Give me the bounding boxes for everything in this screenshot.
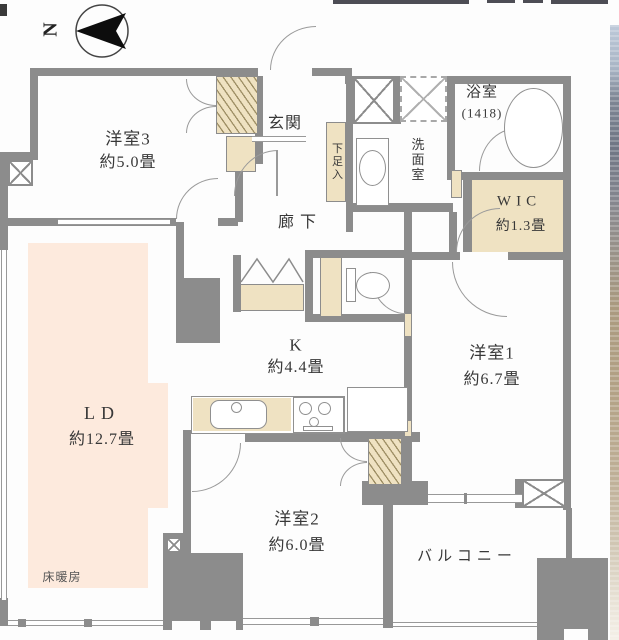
- grill-icon: [303, 426, 333, 431]
- bathtub-icon: [504, 88, 563, 168]
- entrance-step-line: [252, 136, 306, 142]
- compass-north-label: N: [40, 22, 63, 36]
- closet-room3: [216, 76, 258, 134]
- faucet-icon: [231, 402, 242, 413]
- room1-label: 洋室1: [469, 345, 515, 362]
- building-photo-sliver: [610, 25, 619, 640]
- folding-door-icon: [240, 257, 304, 284]
- window-mullion: [310, 617, 319, 626]
- door-leaf: [276, 150, 278, 196]
- cropped-text-artifact: [523, 0, 543, 3]
- hall-storage: [240, 284, 304, 311]
- wall: [8, 152, 38, 160]
- hallway-label: 廊下: [278, 215, 322, 231]
- washbasin-bowl-icon: [359, 150, 386, 186]
- wall: [312, 68, 352, 76]
- burner-icon: [318, 402, 331, 415]
- refrigerator-space: [347, 387, 408, 432]
- wall: [383, 505, 393, 628]
- pillar-notch: [564, 629, 588, 640]
- bathroom-label: 浴室: [466, 86, 498, 101]
- shoe-box-label: 下足入: [331, 143, 342, 182]
- bathroom-size: (1418): [462, 107, 503, 120]
- kitchen-label: K: [289, 337, 302, 354]
- cropped-text-artifact: [487, 0, 515, 3]
- window: [428, 494, 522, 503]
- kitchen-size: 約4.4畳: [267, 360, 324, 376]
- room2-size: 約6.0畳: [268, 538, 325, 554]
- room3-door-arc: [176, 178, 218, 219]
- balcony-label: バルコニー: [417, 550, 517, 565]
- room3-size: 約5.0畳: [99, 155, 156, 171]
- cropped-text-artifact: [333, 0, 469, 4]
- pillar-notch: [172, 621, 200, 630]
- room2-label: 洋室2: [274, 511, 320, 528]
- floorplan: N: [0, 0, 619, 640]
- washer-space-icon: [400, 76, 447, 122]
- wall: [30, 68, 258, 76]
- wall: [563, 84, 571, 510]
- window-mullion: [18, 619, 26, 627]
- room1-door-arc: [452, 262, 507, 317]
- pillar: [163, 553, 243, 630]
- window: [1, 250, 7, 600]
- pillar: [537, 558, 608, 640]
- wall: [305, 250, 313, 322]
- wall: [508, 252, 571, 260]
- closet-door-arc: [186, 106, 216, 133]
- pipe-space-icon: [8, 160, 33, 186]
- wall: [176, 222, 184, 278]
- wic-label: WIC: [497, 195, 541, 210]
- wall: [0, 598, 8, 626]
- wall: [566, 508, 572, 560]
- wall: [447, 172, 571, 180]
- wall-niche: [404, 313, 412, 337]
- living-label: LD: [84, 404, 120, 422]
- pipe-space-icon: [166, 537, 182, 553]
- closet-room2: [368, 438, 402, 485]
- toilet-counter: [320, 257, 342, 317]
- window-mullion: [84, 619, 92, 627]
- closet-door-arc: [340, 462, 367, 486]
- wic-door-panel: [451, 170, 462, 198]
- pipe-space-icon: [522, 479, 566, 508]
- pillar-notch: [211, 621, 236, 630]
- wic-size: 約1.3畳: [496, 220, 547, 234]
- room2-door-arc: [192, 443, 241, 492]
- toilet-tank-icon: [346, 268, 356, 302]
- wall: [30, 68, 38, 158]
- window: [58, 219, 170, 225]
- living-size: 約12.7畳: [69, 432, 135, 448]
- wall: [0, 152, 8, 250]
- entrance-label: 玄関: [268, 116, 302, 132]
- entrance-door-arc: [270, 26, 316, 70]
- window-mullion: [464, 493, 467, 504]
- room1-size: 約6.7畳: [463, 372, 520, 388]
- toilet-bowl-icon: [356, 272, 390, 299]
- closet-door-arc: [340, 438, 367, 462]
- cropped-mark-artifact: [0, 4, 7, 16]
- pillar: [176, 278, 220, 343]
- balcony-edge-line: [393, 622, 537, 627]
- floor-heating-label: 床暖房: [42, 571, 81, 583]
- closet-door-arc: [186, 79, 216, 106]
- wall: [346, 84, 353, 232]
- room3-label: 洋室3: [105, 131, 151, 148]
- washroom-label: 洗面室: [411, 138, 424, 183]
- compass-icon: [68, 0, 136, 62]
- wall: [447, 84, 455, 180]
- burner-icon: [299, 402, 312, 415]
- pipe-space-icon: [353, 77, 395, 124]
- floor-heating-area: [148, 383, 168, 508]
- cropped-text-artifact: [551, 0, 608, 4]
